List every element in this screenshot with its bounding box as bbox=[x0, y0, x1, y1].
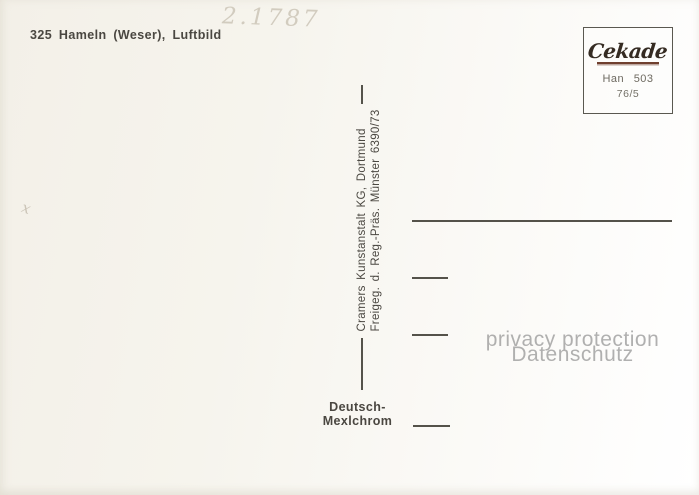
address-line-4 bbox=[413, 425, 450, 427]
handwritten-mark: x bbox=[19, 198, 33, 218]
divider-rule-top bbox=[361, 85, 363, 104]
address-line-1 bbox=[412, 220, 672, 222]
publisher-imprint: Cramers Kunstanstalt KG, Dortmund Freige… bbox=[355, 85, 386, 390]
privacy-watermark: privacy protection Datenschutz bbox=[455, 333, 690, 362]
process-line-2: Mexlchrom bbox=[300, 414, 415, 428]
stamp-box: Cekade Han 503 76/5 bbox=[583, 27, 673, 114]
address-line-2 bbox=[412, 277, 448, 279]
process-label: Deutsch- Mexlchrom bbox=[300, 400, 415, 428]
publisher-imprint-text: Cramers Kunstanstalt KG, Dortmund Freige… bbox=[355, 109, 383, 331]
address-line-3 bbox=[412, 334, 448, 336]
publisher-line-2: Freigeg. d. Reg.-Präs. Münster 6390/73 bbox=[369, 109, 383, 331]
publisher-line-1: Cramers Kunstanstalt KG, Dortmund bbox=[355, 109, 369, 331]
handwritten-number: 2.1787 bbox=[222, 3, 321, 32]
cekade-logo: Cekade bbox=[587, 41, 668, 61]
stamp-code: Han 503 bbox=[602, 73, 653, 85]
divider-rule-bottom bbox=[361, 338, 363, 390]
postcard-back: 325 Hameln (Weser), Luftbild 2.1787 x Ce… bbox=[0, 0, 699, 495]
process-line-1: Deutsch- bbox=[300, 400, 415, 414]
postcard-caption: 325 Hameln (Weser), Luftbild bbox=[30, 28, 222, 42]
stamp-series: 76/5 bbox=[617, 88, 639, 100]
